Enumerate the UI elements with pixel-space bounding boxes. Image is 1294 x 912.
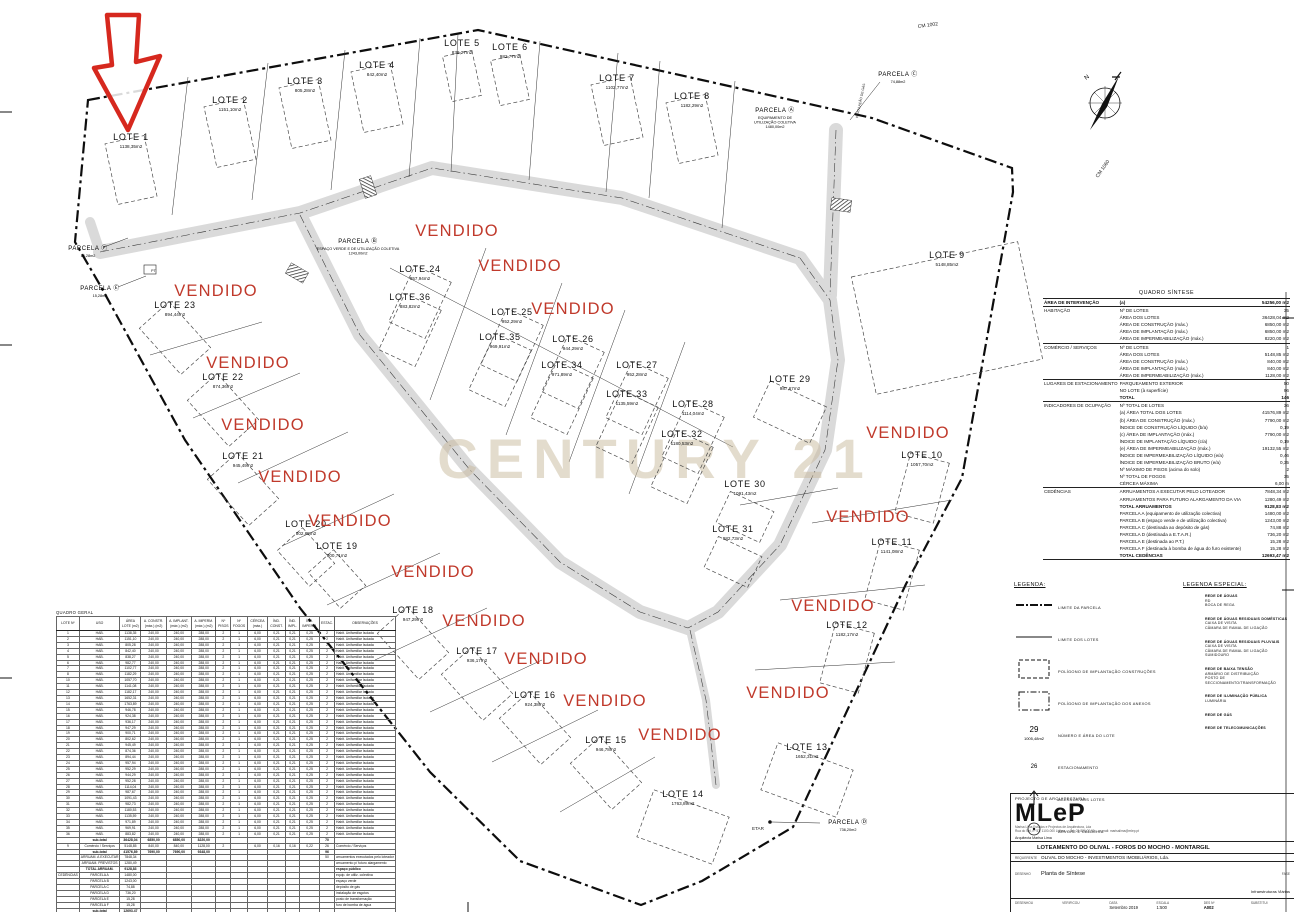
vendido-label: VENDIDO bbox=[826, 508, 910, 526]
lot-label: LOTE 23 bbox=[154, 300, 196, 310]
lot-area: 945,49m2 bbox=[233, 463, 254, 468]
title-block: PROJECTO DE ARQUITECTURA MLeP Marisa Lim… bbox=[1010, 793, 1294, 912]
lot-label: LOTE 10 bbox=[901, 450, 943, 460]
lot-label: LOTE 26 bbox=[552, 334, 594, 344]
lot-label: LOTE 33 bbox=[606, 389, 648, 399]
plan-annotation: PT bbox=[151, 269, 157, 273]
svg-text:1005,48m2: 1005,48m2 bbox=[1024, 736, 1045, 741]
lot-area: 969,91m2 bbox=[490, 344, 511, 349]
lot-label: LOTE 11 bbox=[872, 537, 913, 547]
sintese-row: TOTAL ARRUAMENTOS9128,83 m2 bbox=[1043, 503, 1290, 510]
lot-label: LOTE 30 bbox=[724, 479, 766, 489]
sintese-row: (a) ÁREA TOTAL DOS LOTES41576,89 m2 bbox=[1043, 409, 1290, 416]
vendido-label: VENDIDO bbox=[563, 692, 647, 710]
lot-1: LOTE 11138,35m2 bbox=[105, 132, 157, 204]
lot-area: 1763,89m2 bbox=[672, 801, 695, 806]
sintese-row: ÁREA DOS LOTES5148,85 m2 bbox=[1043, 351, 1290, 358]
lot-number-icon: 291005,48m2 bbox=[1014, 722, 1054, 744]
lot-area: 842,40m2 bbox=[367, 72, 388, 77]
quadro-geral-table: LOTE NºUSOÁREA LOTE (m2)A. CONSTR. (máx.… bbox=[56, 616, 396, 912]
sintese-row: CÉRCEA MÁXIMA6,00 m bbox=[1043, 480, 1290, 488]
lot-label: LOTE 17 bbox=[456, 646, 498, 656]
qg-column-header: ÍND. IMPL. bbox=[285, 617, 299, 631]
verificou-label: VERIFICOU bbox=[1062, 901, 1105, 905]
lot-area: 805,28m2 bbox=[295, 88, 316, 93]
lot-area: 952,29m2 bbox=[502, 319, 523, 324]
desenho-value: Planta de Síntese bbox=[1041, 870, 1085, 878]
lot-area: 838,27m2 bbox=[452, 50, 473, 55]
implantation-polygon bbox=[443, 50, 482, 101]
lot-area: 1057,70m2 bbox=[911, 462, 934, 467]
implantation-polygon bbox=[491, 54, 530, 105]
sintese-row: HABITAÇÃONº DE LOTES35 bbox=[1043, 307, 1290, 315]
north-label: N bbox=[1084, 74, 1091, 81]
lot-label: LOTE 27 bbox=[616, 360, 658, 370]
lot-area: 1114,04m2 bbox=[682, 411, 705, 416]
lot-area: 944,29m2 bbox=[563, 346, 584, 351]
sintese-row: ARRUAMENTOS PARA FUTURO ALARGAMENTO DA V… bbox=[1043, 496, 1290, 503]
vendido-label: VENDIDO bbox=[866, 424, 950, 442]
lot-8: LOTE 81182,29m2 bbox=[666, 91, 718, 163]
lot-14: LOTE 141763,89m2 bbox=[637, 789, 729, 864]
lot-area: 1141,08m2 bbox=[881, 549, 904, 554]
desenhou-label: DESENHOU bbox=[1015, 901, 1058, 905]
etar-point bbox=[768, 820, 772, 824]
sintese-row: ÍNDICE DE IMPERMEABILIZAÇÃO LÍQUIDO (e/a… bbox=[1043, 452, 1290, 459]
lot-label: LOTE 7 bbox=[599, 73, 635, 83]
parcela-B-label: PARCELA ⒷESPAÇO VERDE E DE UTILIZAÇÃO CO… bbox=[317, 237, 400, 256]
lot-label: LOTE 2 bbox=[212, 95, 248, 105]
lot-label: LOTE 24 bbox=[399, 264, 441, 274]
svg-text:29: 29 bbox=[1030, 725, 1039, 734]
project-title: LOTEAMENTO DO OLIVAL - FOROS DO MOCHO - … bbox=[1011, 842, 1294, 854]
sintese-row: PARCELA E (destinada ao P.T.)15,28 m2 bbox=[1043, 538, 1290, 545]
lot-label: LOTE 4 bbox=[359, 60, 395, 70]
lot-19: LOTE 19900,71m2 bbox=[308, 541, 365, 608]
lot-label: LOTE 8 bbox=[674, 91, 710, 101]
lot-label: LOTE 25 bbox=[491, 307, 533, 317]
location-arrow-icon bbox=[94, 15, 160, 130]
lot-label: LOTE 18 bbox=[392, 605, 434, 615]
parcela-E-label: PARCELA Ⓔ15,28m2 bbox=[80, 284, 119, 298]
plan-annotation: INSTALAÇÃO DE GÁS bbox=[854, 82, 866, 118]
vendido-label: VENDIDO bbox=[531, 300, 615, 318]
legenda-especial-title: LEGENDA ESPECIAL: bbox=[1183, 582, 1291, 588]
legend-esp-group: REDE DE ÁGUASRDBOCA DE REGA bbox=[1205, 594, 1291, 608]
lot-area: 894,44m2 bbox=[165, 312, 186, 317]
legend-item-label: NÚMERO E ÁREA DO LOTE bbox=[1058, 733, 1115, 738]
lot-area: 900,71m2 bbox=[327, 553, 348, 558]
sintese-row: (e) ÁREA DE IMPERMEABILIZAÇÃO (máx.)1913… bbox=[1043, 445, 1290, 452]
sintese-row: (b) ÁREA DE CONSTRUÇÃO (máx.)7790,00 m2 bbox=[1043, 417, 1290, 424]
vendido-label: VENDIDO bbox=[442, 612, 526, 630]
legend-item: 291005,48m2NÚMERO E ÁREA DO LOTE bbox=[1014, 722, 1172, 749]
vendido-label: VENDIDO bbox=[391, 563, 475, 581]
legend-item: POLÍGONO DE IMPLANTAÇÃO DOS ANEXOS bbox=[1014, 690, 1172, 717]
lot-area: 883,82m2 bbox=[400, 304, 421, 309]
quadro-sintese-title: QUADRO SÍNTESE bbox=[1043, 290, 1290, 296]
lot-35: LOTE 35969,91m2 bbox=[469, 332, 531, 407]
sintese-row: INDICADORES DE OCUPAÇÃONº TOTAL DE LOTES… bbox=[1043, 402, 1290, 410]
lot-3: LOTE 3805,28m2 bbox=[279, 76, 331, 148]
qg-row: sub-total12693,47 bbox=[57, 908, 396, 912]
sintese-row: ÁREA DE CONSTRUÇÃO (máx.)840,00 m2 bbox=[1043, 358, 1290, 365]
desnum-value: A002 bbox=[1204, 905, 1247, 910]
plan-annotation: ETAR bbox=[752, 826, 765, 831]
legend-esp-group: REDE DE ÁGUAS RESIDUAIS PLUVIAISCAIXA DE… bbox=[1205, 640, 1291, 658]
qg-column-header: A. IMPERM. (máx.) (m2) bbox=[191, 617, 215, 631]
lot-area: 1138,35m2 bbox=[120, 144, 143, 149]
requerente-label: REQUERENTE bbox=[1011, 854, 1041, 861]
legend-item-label: POLÍGONO DE IMPLANTAÇÃO CONSTRUÇÕES bbox=[1058, 669, 1156, 674]
sintese-row: Nº TOTAL DE FOGOS35 bbox=[1043, 473, 1290, 480]
legend-item-label: ESTACIONAMENTO bbox=[1058, 765, 1098, 770]
lot-area: 936,17m2 bbox=[467, 658, 488, 663]
legend-esp-group: REDE DE GÁS bbox=[1205, 713, 1291, 718]
lot-5: LOTE 5838,27m2 bbox=[443, 38, 482, 102]
sintese-row: ÁREA DE CONSTRUÇÃO (máx.)6850,00 m2 bbox=[1043, 321, 1290, 328]
qg-column-header: ÍND. IMPERM. bbox=[300, 617, 320, 631]
sintese-row: ÁREA DE INTERVENÇÃO(a)54256,00 m2 bbox=[1043, 299, 1290, 307]
lot-4: LOTE 4842,40m2 bbox=[351, 60, 403, 132]
lot-label: LOTE 16 bbox=[514, 690, 556, 700]
vendido-label: VENDIDO bbox=[221, 416, 305, 434]
vendido-label: VENDIDO bbox=[478, 257, 562, 275]
lot-2: LOTE 21151,10m2 bbox=[204, 95, 256, 167]
qg-column-header: OBSERVAÇÕES bbox=[335, 617, 396, 631]
legend-esp-group: REDE DE ILUMINAÇÃO PÚBLICALUMINÁRIA bbox=[1205, 694, 1291, 703]
sintese-row: COMÉRCIO / SERVIÇOSNº DE LOTES1 bbox=[1043, 343, 1290, 351]
lot-34: LOTE 34971,89m2 bbox=[531, 360, 593, 435]
implantation-polygon bbox=[716, 491, 774, 542]
vendido-label: VENDIDO bbox=[308, 512, 392, 530]
substitui-label: SUBSTITUI bbox=[1251, 901, 1294, 905]
qg-column-header: Nº PISOS bbox=[216, 617, 231, 631]
lot-6: LOTE 6982,77m2 bbox=[491, 42, 530, 106]
drawing-sheet: CENTURY 21 LOTE 11138,35m2LOTE 21151,10m… bbox=[0, 0, 1294, 912]
plan-annotation: CM 1060 bbox=[1095, 159, 1112, 179]
plan-annotation: CM 1002 bbox=[917, 21, 938, 30]
legend-item: LIMITE DOS LOTES bbox=[1014, 626, 1172, 653]
lot-label: LOTE 12 bbox=[826, 620, 868, 630]
dashdot-rect-icon bbox=[1014, 690, 1054, 712]
quadro-sintese: QUADRO SÍNTESE ÁREA DE INTERVENÇÃO(a)542… bbox=[1043, 290, 1290, 560]
lot-label: LOTE 9 bbox=[929, 250, 965, 260]
sintese-row: NO LOTE (à superfície)96 bbox=[1043, 387, 1290, 394]
sintese-row: ÁREA DE IMPLANTAÇÃO (máx.)6850,00 m2 bbox=[1043, 328, 1290, 335]
parcela-leader bbox=[772, 822, 820, 823]
lot-area: 1102,77m2 bbox=[606, 85, 629, 90]
lot-area: 982,77m2 bbox=[500, 54, 521, 59]
legend-item: POLÍGONO DE IMPLANTAÇÃO CONSTRUÇÕES bbox=[1014, 658, 1172, 685]
lot-label: LOTE 32 bbox=[661, 429, 703, 439]
lot-area: 1180,53m2 bbox=[671, 441, 694, 446]
sintese-row: PARCELA A (equipamento de utilização col… bbox=[1043, 510, 1290, 517]
lot-label: LOTE 21 bbox=[222, 451, 264, 461]
parcela-C-label: PARCELA Ⓒ74,88m2 bbox=[878, 70, 917, 84]
qg-column-header: CÉRCEA (máx.) bbox=[247, 617, 267, 631]
sintese-row: Nº MÁXIMO DE PISOS (acima do solo)2 bbox=[1043, 466, 1290, 473]
lot-area: 947,29m2 bbox=[403, 617, 424, 622]
parcela-leader bbox=[118, 276, 146, 287]
lot-area: 1182,29m2 bbox=[681, 103, 704, 108]
firm-logo: MLeP bbox=[1011, 801, 1294, 825]
sintese-row: TOTAL CEDÊNCIAS12693,47 m2 bbox=[1043, 552, 1290, 560]
lot-13: LOTE 131652,31m2 bbox=[761, 742, 853, 817]
sintese-row: ÍNDICE DE IMPERMEABILIZAÇÃO BRUTO (e/a)0… bbox=[1043, 459, 1290, 466]
data-value: Setembro 2019 bbox=[1109, 905, 1152, 910]
qg-column-header: ÍND. CONST. bbox=[268, 617, 286, 631]
lot-area: 1652,31m2 bbox=[796, 754, 819, 759]
lot-limit-icon bbox=[1014, 626, 1054, 648]
lot-area: 1182,17m2 bbox=[836, 632, 859, 637]
legenda-especial: LEGENDA ESPECIAL: REDE DE ÁGUASRDBOCA DE… bbox=[1183, 582, 1291, 740]
lot-area: 952,28m2 bbox=[627, 372, 648, 377]
lot-22: LOTE 22874,36m2 bbox=[187, 372, 258, 446]
parcela-A-label: PARCELA ⒶEQUIPAMENTO DEUTILIZAÇÃO COLETI… bbox=[754, 106, 796, 129]
lot-area: 802,62m2 bbox=[296, 531, 317, 536]
legend-item: LIMITE DA PARCELA bbox=[1014, 594, 1172, 621]
qg-column-header: ESTAC. bbox=[320, 617, 335, 631]
sintese-row: CEDÊNCIASARRUAMENTOS A EXECUTAR PELO LOT… bbox=[1043, 488, 1290, 496]
lot-label: LOTE 22 bbox=[202, 372, 244, 382]
sintese-row: TOTAL146 bbox=[1043, 394, 1290, 402]
vendido-label: VENDIDO bbox=[415, 222, 499, 240]
qg-column-header: USO bbox=[79, 617, 120, 631]
lot-area: 946,78m2 bbox=[596, 747, 617, 752]
lot-area: 5148,85m2 bbox=[936, 262, 959, 267]
lot-area: 874,36m2 bbox=[213, 384, 234, 389]
lot-label: LOTE 28 bbox=[672, 399, 714, 409]
lot-area: 1151,10m2 bbox=[219, 107, 242, 112]
qg-column-header: A. IMPLANT. (máx.) (m2) bbox=[166, 617, 191, 631]
qg-column-header: ÁREA LOTE (m2) bbox=[120, 617, 141, 631]
lot-label: LOTE 1 bbox=[113, 132, 149, 142]
lot-label: LOTE 14 bbox=[662, 789, 704, 799]
quadro-geral: QUADRO GERAL LOTE NºUSOÁREA LOTE (m2)A. … bbox=[56, 610, 396, 912]
lot-area: 1091,43m2 bbox=[734, 491, 757, 496]
lot-7: LOTE 71102,77m2 bbox=[591, 73, 643, 145]
parcel-limit-icon bbox=[1014, 594, 1054, 616]
vendido-label: VENDIDO bbox=[504, 650, 588, 668]
legend-esp-group: REDE DE TELECOMUNICAÇÕES bbox=[1205, 726, 1291, 731]
legend-esp-group: REDE DE ÁGUAS RESIDUAIS DOMÉSTICASCAIXA … bbox=[1205, 617, 1291, 631]
sintese-row: ÁREA DE IMPLANTAÇÃO (máx.)840,00 m2 bbox=[1043, 365, 1290, 372]
qg-column-header: LOTE Nº bbox=[57, 617, 80, 631]
vendido-label: VENDIDO bbox=[746, 684, 830, 702]
lot-area: 1135,59m2 bbox=[616, 401, 639, 406]
lot-label: LOTE 34 bbox=[541, 360, 583, 370]
watermark: CENTURY 21 bbox=[437, 427, 872, 490]
qg-column-header: A. CONSTR. (máx.) (m2) bbox=[141, 617, 166, 631]
sintese-row: PARCELA B (espaço verde e de utilização … bbox=[1043, 517, 1290, 524]
lot-area: 971,89m2 bbox=[552, 372, 573, 377]
svg-text:26: 26 bbox=[1031, 764, 1038, 770]
architect-name: Arquitecta Marisa Lima bbox=[1011, 833, 1294, 842]
lot-23: LOTE 23894,44m2 bbox=[139, 300, 210, 374]
lot-label: LOTE 6 bbox=[492, 42, 528, 52]
sintese-row: PARCELA D (destinada a E.T.A.R.)736,20 m… bbox=[1043, 531, 1290, 538]
legend-item-label: POLÍGONO DE IMPLANTAÇÃO DOS ANEXOS bbox=[1058, 701, 1151, 706]
parcela-D-label: PARCELA Ⓓ736,20m2 bbox=[828, 818, 867, 832]
lot-9: LOTE 95148,85m2 bbox=[851, 242, 1042, 395]
vendido-label: VENDIDO bbox=[638, 726, 722, 744]
quadro-geral-title: QUADRO GERAL bbox=[56, 610, 396, 615]
lot-label: LOTE 35 bbox=[479, 332, 521, 342]
lot-label: LOTE 29 bbox=[769, 374, 811, 384]
lot-label: LOTE 15 bbox=[585, 735, 627, 745]
lot-17: LOTE 17936,17m2 bbox=[441, 646, 512, 720]
legenda-title: LEGENDA: bbox=[1014, 582, 1172, 588]
lot-area: 924,38m2 bbox=[525, 702, 546, 707]
vendido-label: VENDIDO bbox=[206, 354, 290, 372]
legend-item-label: LIMITE DA PARCELA bbox=[1058, 605, 1101, 610]
lot-area: 957,94m2 bbox=[410, 276, 431, 281]
sintese-row: ÍNDICE DE IMPLANTAÇÃO LÍQUIDO (c/a)0,19 bbox=[1043, 438, 1290, 445]
vendido-label: VENDIDO bbox=[258, 468, 342, 486]
sintese-row: ÍNDICE DE CONSTRUÇÃO LÍQUIDO (b/a)0,19 bbox=[1043, 424, 1290, 431]
lot-36: LOTE 36883,82m2 bbox=[379, 292, 441, 367]
escala-value: 1:500 bbox=[1157, 905, 1200, 910]
lot-label: LOTE 5 bbox=[444, 38, 480, 48]
vendido-label: VENDIDO bbox=[791, 597, 875, 615]
sintese-row: (c) ÁREA DE IMPLANTAÇÃO (máx.)7790,00 m2 bbox=[1043, 431, 1290, 438]
north-compass-icon: N bbox=[1084, 72, 1122, 130]
lot-label: LOTE 31 bbox=[712, 524, 754, 534]
sintese-row: ÁREA DOS LOTES36428,04 m2 bbox=[1043, 314, 1290, 321]
sintese-row: LUGARES DE ESTACIONAMENTOPARQUEAMENTO EX… bbox=[1043, 380, 1290, 388]
legend-esp-group: REDE DE BAIXA TENSÃOARMÁRIO DE DISTRIBUI… bbox=[1205, 667, 1291, 685]
legend-item: 26ESTACIONAMENTO bbox=[1014, 754, 1172, 781]
lot-label: LOTE 13 bbox=[786, 742, 828, 752]
lot-15: LOTE 15946,78m2 bbox=[570, 735, 641, 809]
lot-12: LOTE 121182,17m2 bbox=[820, 620, 875, 693]
fase-value: Infraestruturas Viárias bbox=[1251, 888, 1290, 895]
requerente-value: OLIVAL DO MOCHO - INVESTIMENTOS IMOBILIÁ… bbox=[1041, 854, 1169, 861]
lot-area: 987,67m2 bbox=[780, 386, 801, 391]
sintese-row: ÁREA DE IMPERMEABILIZAÇÃO (máx.)1128,00 … bbox=[1043, 372, 1290, 380]
sintese-row: PARCELA C (destinada ao depósito de gás)… bbox=[1043, 524, 1290, 531]
parking-icon: 26 bbox=[1014, 754, 1054, 776]
qg-column-header: Nº FOGOS bbox=[231, 617, 248, 631]
sintese-row: PARCELA F (destinada à bomba de água do … bbox=[1043, 545, 1290, 552]
desenho-label: DESENHO bbox=[1011, 870, 1041, 877]
dash-rect-icon bbox=[1014, 658, 1054, 680]
legend-item-label: LIMITE DOS LOTES bbox=[1058, 637, 1099, 642]
quadro-sintese-table: ÁREA DE INTERVENÇÃO(a)54256,00 m2HABITAÇ… bbox=[1043, 298, 1290, 560]
lot-label: LOTE 3 bbox=[287, 76, 323, 86]
fase-label: FASE bbox=[1278, 870, 1290, 877]
sintese-row: ÁREA DE IMPERMEABILIZAÇÃO (máx.)8220,00 … bbox=[1043, 335, 1290, 343]
lot-label: LOTE 36 bbox=[389, 292, 431, 302]
lot-area: 982,73m2 bbox=[723, 536, 744, 541]
vendido-label: VENDIDO bbox=[174, 282, 258, 300]
